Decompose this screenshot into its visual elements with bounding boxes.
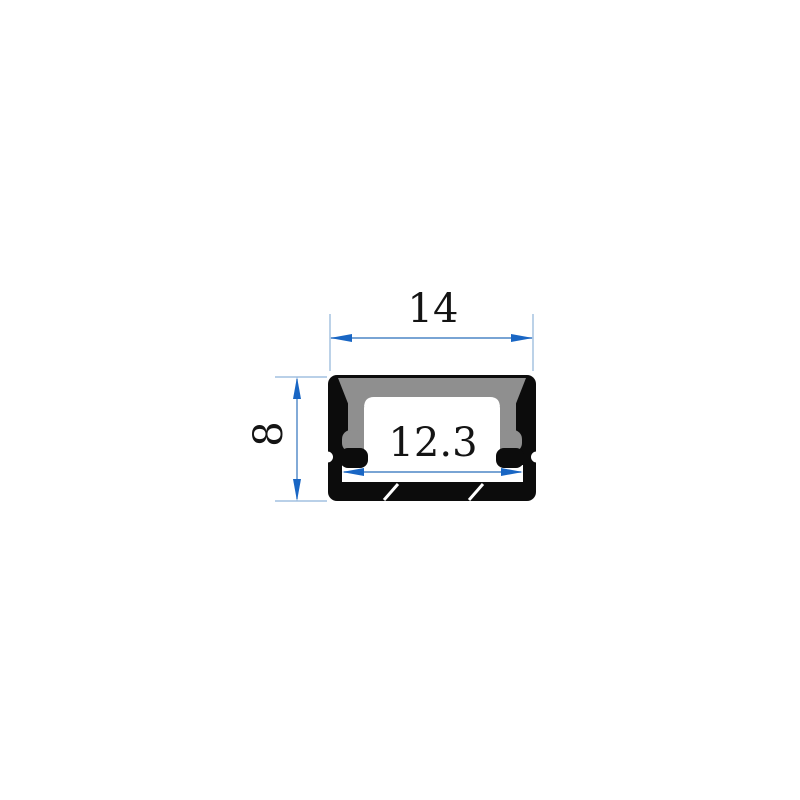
arrow-right-icon [511,334,533,342]
cavity-bottom-groove [342,465,523,482]
dim-inner-width-label: 12.3 [388,420,477,466]
arrow-down-icon [293,479,301,501]
wall-notch-right [531,452,542,463]
technical-drawing-canvas: 14 8 12.3 [0,0,800,800]
clip-bump-left [340,448,368,468]
page-background: 14 8 12.3 [0,0,800,800]
dimension-height: 8 [246,377,327,501]
clip-bump-right [496,448,524,468]
wall-notch-left [322,452,333,463]
dim-height-label: 8 [246,421,292,446]
arrow-left-icon [330,334,352,342]
arrow-up-icon [293,377,301,399]
dim-width-label: 14 [408,286,459,332]
dimension-width: 14 [330,286,533,371]
